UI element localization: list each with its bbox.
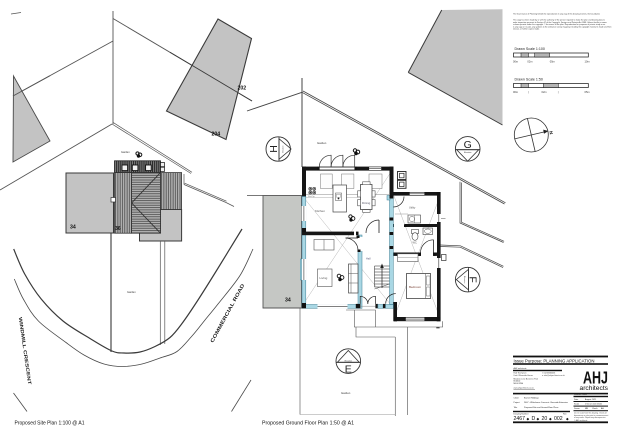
svg-text:Drawn: Drawn [574,408,580,410]
svg-text:Garden: Garden [127,290,136,294]
svg-text:Barnett Holdings: Barnett Holdings [524,396,539,399]
svg-text:Issue Purpose: PLANNING APPLIC: Issue Purpose: PLANNING APPLICATION [514,358,595,363]
svg-text:H: H [268,145,280,153]
svg-text:Drawn Scale 1:100: Drawn Scale 1:100 [515,47,545,51]
svg-text:AHJ architects: AHJ architects [514,367,527,370]
svg-text:D: D [532,416,536,422]
svg-text:2467 - Whitehorse Crescent - B: 2467 - Whitehorse Crescent - Barnside Ex… [524,401,568,404]
svg-text:Elevation: Elevation [345,360,352,363]
svg-text:Garden: Garden [317,141,327,145]
svg-text:Utility: Utility [409,206,416,210]
svg-text:Proposed Site and Ground Floor: Proposed Site and Ground Floor Plans [524,406,558,409]
svg-text:Bedroom: Bedroom [409,285,422,289]
svg-text:© AHJ architects: © AHJ architects [574,419,587,422]
svg-text:05m: 05m [585,90,590,94]
svg-text:E: E [345,364,352,376]
svg-text:00m: 00m [513,60,518,64]
svg-text:Client: Client [514,396,520,399]
svg-text:Elevation: Elevation [463,276,466,283]
svg-text:Drawn Scale 1:50: Drawn Scale 1:50 [515,78,543,82]
svg-text:◆: ◆ [537,417,540,421]
svg-text:Garden: Garden [121,150,130,154]
svg-text:Work Top: Work Top [308,196,315,198]
svg-text:Scale: Scale [574,404,580,406]
svg-text:Elevation: Elevation [282,145,285,152]
svg-text:www.ahjarchitects.co.uk: www.ahjarchitects.co.uk [514,387,534,390]
svg-text:architects: architects [580,385,609,392]
svg-text:2467: 2467 [514,416,526,422]
svg-text:WC: WC [413,241,417,245]
svg-text:20: 20 [542,416,548,422]
svg-text:202: 202 [238,86,247,92]
svg-text:10m: 10m [585,60,590,64]
svg-text:e: info@ahjarchitects.co.uk: e: info@ahjarchitects.co.uk [542,374,565,377]
svg-text:002: 002 [554,416,563,422]
svg-text:Rev: Rev [563,414,567,416]
svg-text:36: 36 [115,226,121,232]
svg-text:G: G [464,139,472,151]
svg-text:Issued/Printed: Issued/Printed [574,393,587,396]
svg-text:of any works. Report any discr: of any works. Report any discrepancies. [574,416,606,419]
svg-text:Check: Check [592,408,598,410]
svg-text:05m: 05m [550,60,555,64]
svg-text:Garden: Garden [341,391,351,395]
svg-text:Unit 4 Riverside House: Unit 4 Riverside House [514,374,533,377]
svg-text:1:50 & 1:100 @ A1: 1:50 & 1:100 @ A1 [585,403,603,406]
svg-text:August 2021: August 2021 [585,398,597,401]
svg-text:00m: 00m [513,90,518,94]
svg-text:MK44 3WH: MK44 3WH [514,383,524,385]
svg-text:Project: Project [514,401,521,404]
svg-text:204: 204 [212,132,221,138]
svg-text:The Governance of Planning for: The Governance of Planning forbids the r… [513,13,600,16]
svg-text:34: 34 [70,225,76,231]
svg-text:Elevation: Elevation [464,151,471,154]
svg-text:Proposed Site Plan 1:100 @ A1: Proposed Site Plan 1:100 @ A1 [15,421,85,427]
svg-text:Living: Living [320,276,328,280]
svg-text:◆: ◆ [549,417,552,421]
svg-text:34: 34 [285,298,291,304]
svg-text:Proposed Ground Floor Plan 1:5: Proposed Ground Floor Plan 1:50 @ A1 [262,421,354,427]
svg-text:02m: 02m [542,90,547,94]
svg-text:02m: 02m [527,60,532,64]
svg-text:◆: ◆ [527,417,530,421]
svg-text:Dining: Dining [362,201,371,205]
svg-text:Kitchen: Kitchen [315,209,325,213]
svg-text:F: F [467,276,479,282]
svg-text:Hall: Hall [366,257,371,261]
svg-text:◆: ◆ [566,417,569,421]
svg-text:reissue, or further copies mad: reissue, or further copies made. [513,28,540,31]
